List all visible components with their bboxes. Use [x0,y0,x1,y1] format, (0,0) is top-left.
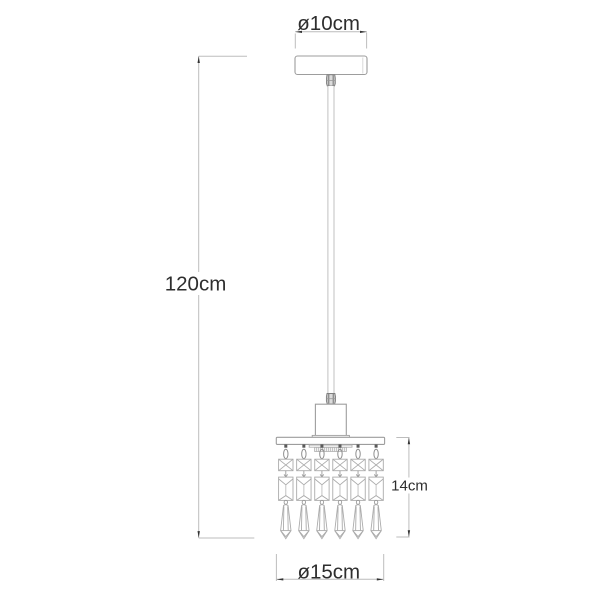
svg-text:120cm: 120cm [165,272,227,295]
svg-text:14cm: 14cm [391,477,428,494]
svg-text:ø15cm: ø15cm [297,560,360,583]
svg-text:ø10cm: ø10cm [297,12,360,35]
